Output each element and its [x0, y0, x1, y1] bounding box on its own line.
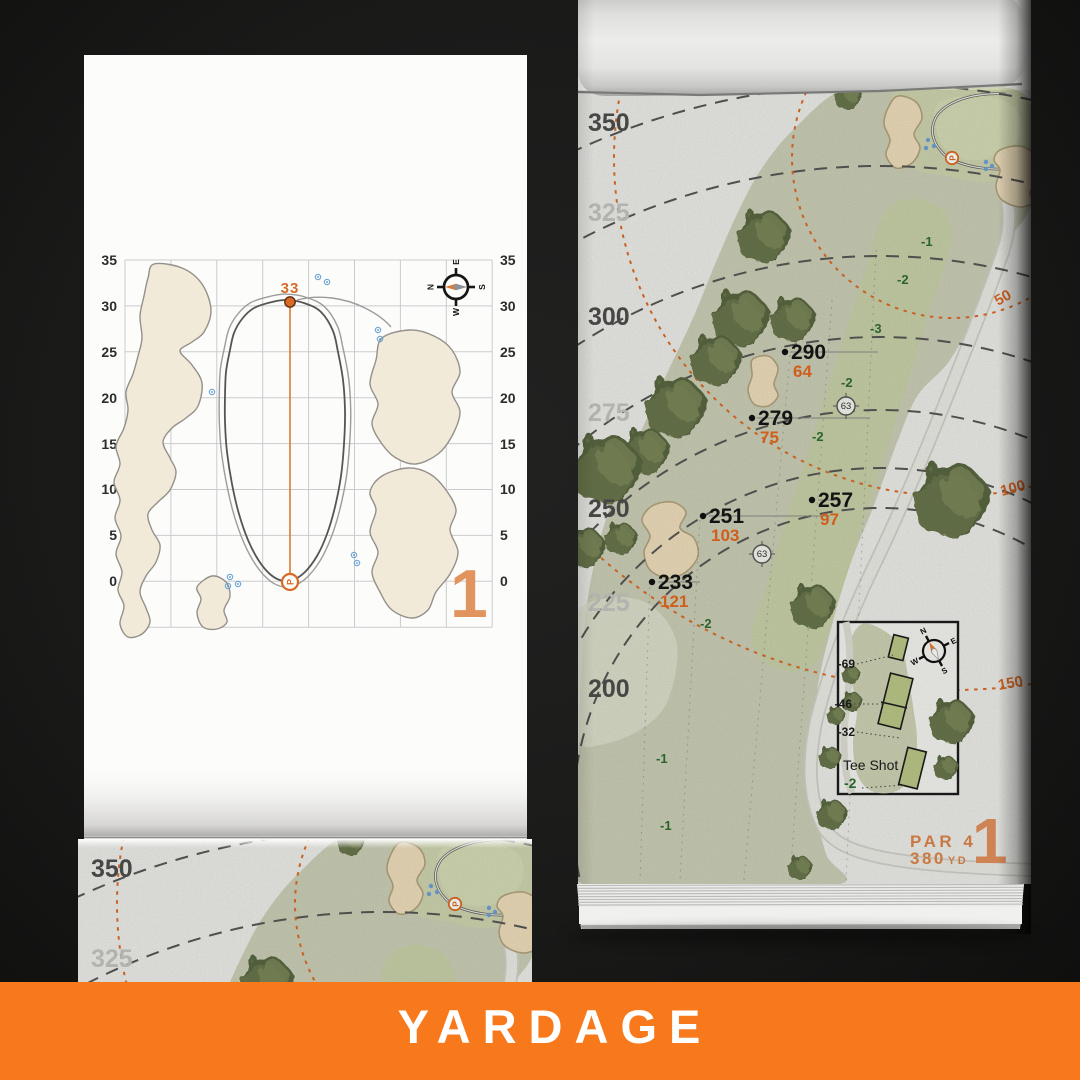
svg-text:25: 25 — [500, 344, 516, 360]
svg-text:E: E — [451, 259, 461, 265]
svg-text:35: 35 — [101, 252, 117, 268]
svg-text:20: 20 — [101, 390, 117, 406]
svg-text:5: 5 — [109, 527, 117, 543]
svg-text:35: 35 — [500, 252, 516, 268]
svg-text:15: 15 — [101, 436, 117, 452]
svg-text:25: 25 — [101, 344, 117, 360]
svg-text:10: 10 — [500, 481, 516, 497]
svg-text:1: 1 — [450, 556, 488, 632]
svg-text:N: N — [426, 284, 436, 290]
svg-text:P: P — [286, 579, 296, 585]
svg-text:33: 33 — [281, 280, 300, 297]
svg-text:S: S — [477, 284, 487, 290]
svg-text:15: 15 — [500, 436, 516, 452]
svg-text:W: W — [451, 307, 461, 316]
svg-text:5: 5 — [500, 527, 508, 543]
svg-text:30: 30 — [101, 298, 117, 314]
svg-text:0: 0 — [109, 573, 117, 589]
svg-text:20: 20 — [500, 390, 516, 406]
svg-text:30: 30 — [500, 298, 516, 314]
svg-text:YARDAGE: YARDAGE — [398, 1000, 713, 1053]
svg-text:0: 0 — [500, 573, 508, 589]
